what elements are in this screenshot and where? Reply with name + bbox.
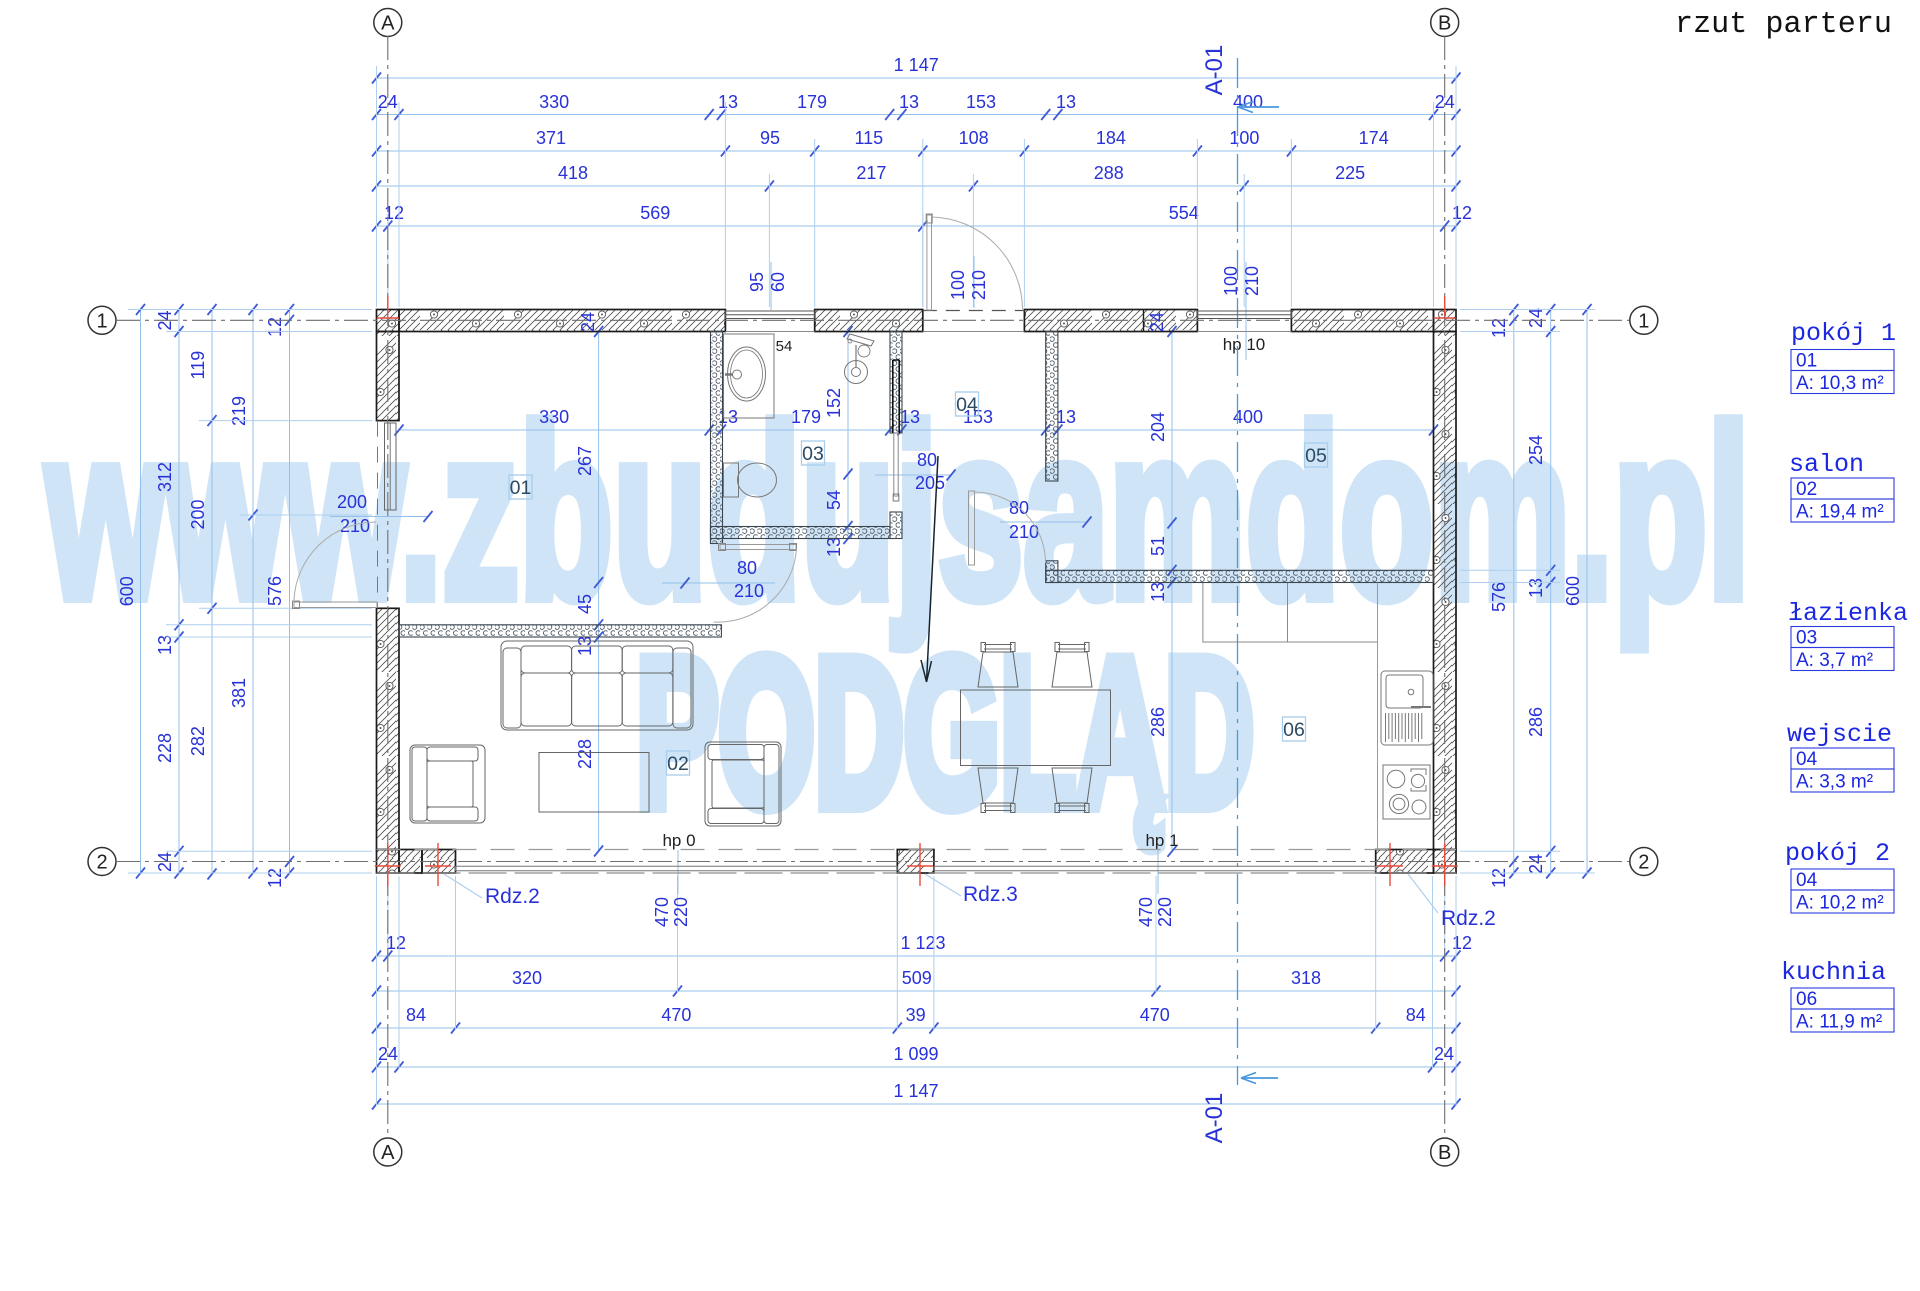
svg-text:13: 13 [155, 635, 175, 655]
svg-text:286: 286 [1526, 707, 1546, 737]
svg-text:228: 228 [575, 739, 595, 769]
svg-text:hp 1: hp 1 [1145, 831, 1178, 850]
svg-text:509: 509 [902, 968, 932, 988]
svg-text:217: 217 [856, 163, 886, 183]
svg-text:210: 210 [1242, 266, 1262, 296]
svg-text:219: 219 [229, 396, 249, 426]
svg-text:80: 80 [917, 450, 937, 470]
svg-text:600: 600 [1563, 576, 1583, 606]
svg-text:2: 2 [96, 852, 107, 874]
svg-text:12: 12 [1452, 203, 1472, 223]
svg-text:2: 2 [1638, 852, 1649, 874]
svg-text:108: 108 [959, 128, 989, 148]
svg-text:12: 12 [265, 868, 285, 888]
svg-text:60: 60 [768, 272, 788, 292]
svg-text:1 147: 1 147 [893, 1081, 938, 1101]
svg-text:267: 267 [575, 446, 595, 476]
svg-text:51: 51 [1148, 536, 1168, 556]
svg-text:A: 11,9 m²: A: 11,9 m² [1796, 1012, 1882, 1033]
svg-text:04: 04 [1796, 749, 1818, 770]
svg-text:B: B [1438, 1142, 1451, 1164]
svg-text:13: 13 [1056, 92, 1076, 112]
svg-text:95: 95 [747, 272, 767, 292]
svg-text:45: 45 [575, 594, 595, 614]
svg-text:569: 569 [640, 203, 670, 223]
svg-text:hp 10: hp 10 [1223, 335, 1266, 354]
svg-text:95: 95 [760, 128, 780, 148]
svg-text:05: 05 [1305, 445, 1327, 467]
svg-text:12: 12 [1452, 933, 1472, 953]
svg-text:13: 13 [1526, 578, 1546, 598]
svg-text:205: 205 [915, 473, 945, 493]
svg-text:24: 24 [1526, 308, 1546, 328]
svg-text:B: B [1438, 13, 1451, 35]
svg-text:13: 13 [1056, 407, 1076, 427]
svg-text:13: 13 [1148, 582, 1168, 602]
svg-text:A: A [381, 1142, 395, 1164]
svg-text:100: 100 [948, 270, 968, 300]
svg-text:320: 320 [512, 968, 542, 988]
svg-text:06: 06 [1796, 989, 1817, 1010]
svg-text:12: 12 [1489, 318, 1509, 338]
svg-text:1 147: 1 147 [894, 55, 939, 75]
svg-text:80: 80 [737, 558, 757, 578]
svg-text:153: 153 [966, 92, 996, 112]
svg-text:554: 554 [1169, 203, 1199, 223]
svg-text:54: 54 [776, 338, 793, 355]
svg-text:A: 3,3 m²: A: 3,3 m² [1796, 772, 1873, 793]
svg-text:02: 02 [667, 753, 689, 775]
svg-text:470: 470 [1140, 1005, 1170, 1025]
svg-text:418: 418 [558, 163, 588, 183]
svg-text:1: 1 [1638, 310, 1649, 332]
svg-text:1 099: 1 099 [893, 1044, 938, 1064]
svg-text:A: 10,2 m²: A: 10,2 m² [1796, 893, 1884, 914]
svg-text:Rdz.3: Rdz.3 [963, 883, 1018, 906]
svg-text:01: 01 [510, 477, 532, 499]
svg-text:174: 174 [1359, 128, 1389, 148]
svg-text:288: 288 [1094, 163, 1124, 183]
svg-text:02: 02 [1796, 479, 1817, 500]
svg-text:wejscie: wejscie [1787, 720, 1892, 749]
svg-text:210: 210 [734, 581, 764, 601]
svg-text:24: 24 [1526, 854, 1546, 874]
svg-text:13: 13 [718, 92, 738, 112]
svg-text:A-01: A-01 [1201, 45, 1228, 96]
svg-text:13: 13 [900, 407, 920, 427]
svg-text:152: 152 [824, 388, 844, 418]
svg-text:kuchnia: kuchnia [1781, 958, 1886, 987]
svg-text:04: 04 [956, 394, 978, 416]
svg-text:1 123: 1 123 [900, 933, 945, 953]
svg-text:220: 220 [671, 897, 691, 927]
svg-text:12: 12 [386, 933, 406, 953]
svg-text:39: 39 [906, 1005, 926, 1025]
svg-text:A: 19,4 m²: A: 19,4 m² [1796, 502, 1884, 523]
svg-text:204: 204 [1148, 412, 1168, 442]
svg-text:54: 54 [824, 490, 844, 510]
svg-text:228: 228 [155, 733, 175, 763]
svg-text:200: 200 [337, 492, 367, 512]
svg-text:03: 03 [1796, 628, 1817, 649]
svg-text:119: 119 [188, 351, 208, 380]
svg-text:24: 24 [1434, 1044, 1454, 1064]
svg-text:A: 3,7 m²: A: 3,7 m² [1796, 650, 1873, 671]
svg-text:470: 470 [1136, 897, 1156, 927]
svg-text:13: 13 [899, 92, 919, 112]
svg-text:łazienka: łazienka [1788, 599, 1908, 628]
svg-text:371: 371 [536, 128, 566, 148]
svg-text:470: 470 [652, 897, 672, 927]
svg-text:179: 179 [797, 92, 827, 112]
svg-text:A-01: A-01 [1201, 1093, 1228, 1144]
svg-text:84: 84 [406, 1005, 426, 1025]
svg-text:rzut parteru: rzut parteru [1675, 7, 1892, 42]
svg-text:hp 0: hp 0 [662, 831, 695, 850]
svg-text:115: 115 [854, 128, 883, 148]
svg-text:01: 01 [1796, 351, 1817, 372]
svg-text:24: 24 [1147, 312, 1167, 332]
svg-text:184: 184 [1096, 128, 1126, 148]
svg-text:1: 1 [96, 310, 107, 332]
svg-text:286: 286 [1148, 707, 1168, 737]
svg-text:A: 10,3 m²: A: 10,3 m² [1796, 373, 1884, 394]
svg-text:24: 24 [578, 312, 598, 332]
svg-text:179: 179 [791, 407, 821, 427]
svg-text:254: 254 [1526, 435, 1546, 465]
svg-text:330: 330 [539, 407, 569, 427]
svg-text:84: 84 [1406, 1005, 1426, 1025]
svg-text:06: 06 [1283, 719, 1305, 741]
svg-text:12: 12 [1489, 868, 1509, 888]
svg-text:470: 470 [661, 1005, 691, 1025]
svg-text:A: A [381, 13, 395, 35]
svg-text:04: 04 [1796, 870, 1818, 891]
svg-text:210: 210 [340, 516, 370, 536]
svg-text:03: 03 [802, 443, 824, 465]
svg-text:210: 210 [969, 270, 989, 300]
svg-text:576: 576 [265, 576, 285, 606]
svg-text:13: 13 [824, 537, 844, 557]
svg-text:salon: salon [1789, 450, 1864, 479]
svg-text:200: 200 [188, 499, 208, 529]
svg-text:Rdz.2: Rdz.2 [485, 885, 540, 908]
svg-text:220: 220 [1155, 897, 1175, 927]
svg-text:330: 330 [539, 92, 569, 112]
svg-text:318: 318 [1291, 968, 1321, 988]
svg-text:pokój 1: pokój 1 [1791, 319, 1896, 348]
svg-text:576: 576 [1489, 582, 1509, 612]
svg-text:282: 282 [188, 726, 208, 756]
svg-text:225: 225 [1335, 163, 1365, 183]
svg-text:12: 12 [384, 203, 404, 223]
svg-text:100: 100 [1229, 128, 1259, 148]
svg-text:381: 381 [229, 678, 249, 708]
svg-text:pokój 2: pokój 2 [1785, 839, 1890, 868]
svg-text:600: 600 [117, 576, 137, 606]
svg-text:Rdz.2: Rdz.2 [1441, 907, 1496, 930]
svg-text:312: 312 [155, 462, 175, 492]
